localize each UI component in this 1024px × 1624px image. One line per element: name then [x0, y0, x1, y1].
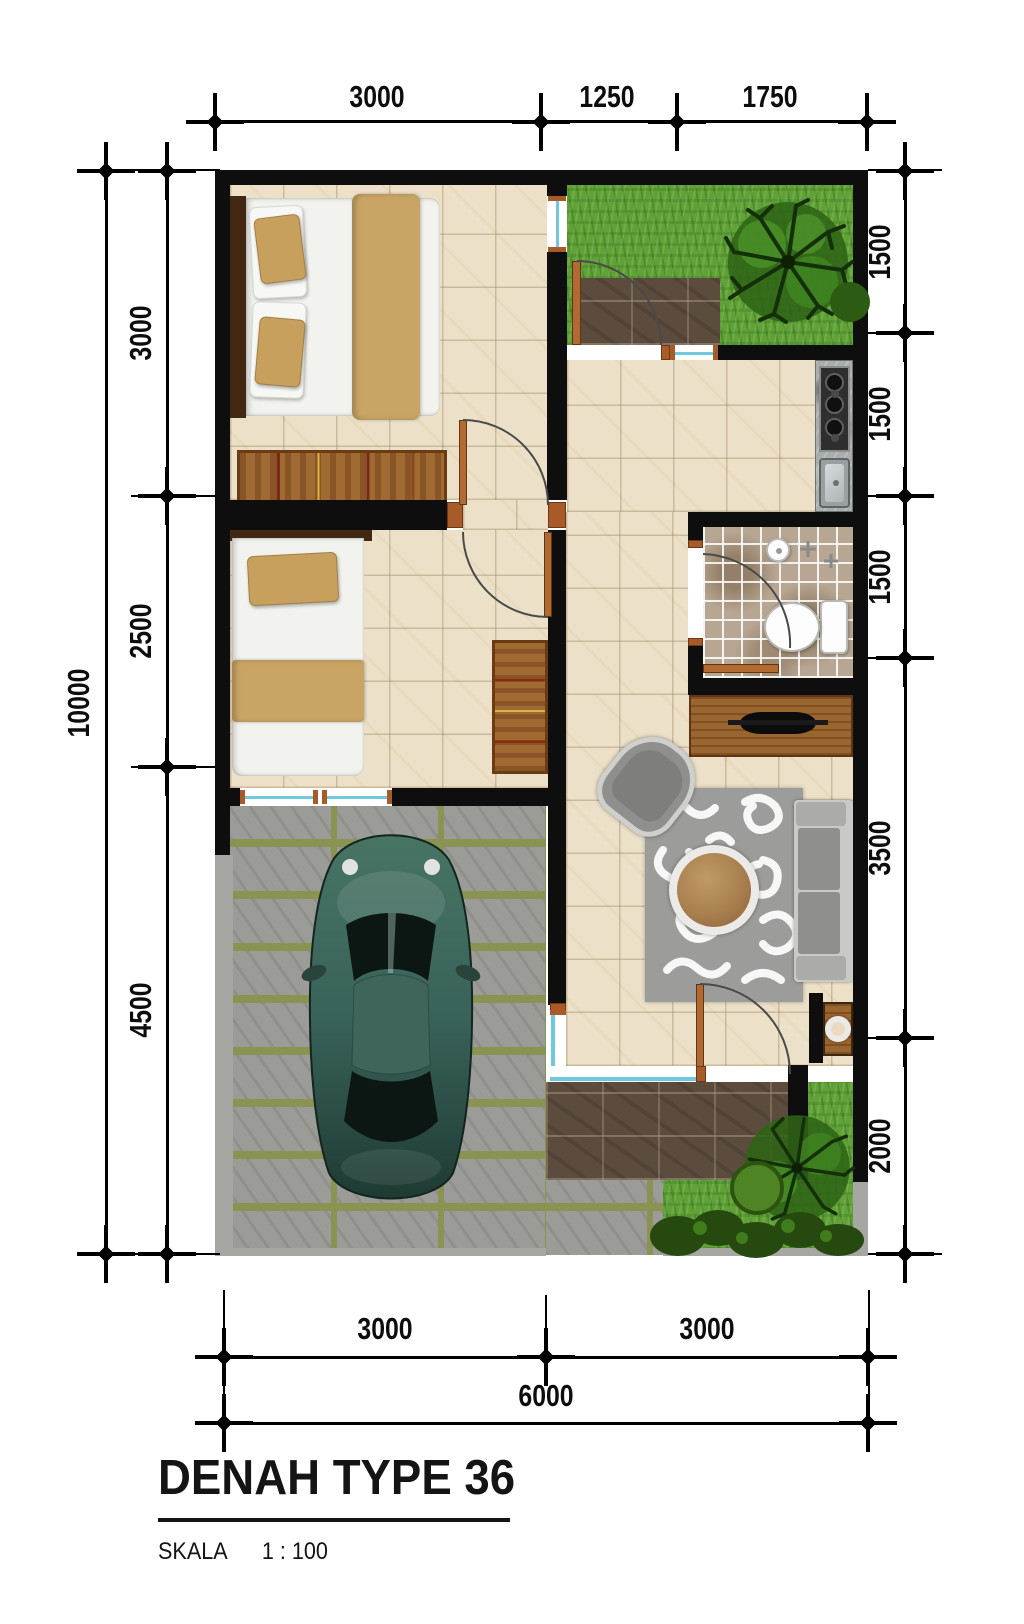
garden-back	[663, 1180, 853, 1250]
sofa-armrest-top	[796, 802, 846, 826]
bed2-pillow	[247, 552, 339, 607]
wall-bed1-east	[547, 170, 567, 196]
dim-tick	[876, 1225, 934, 1283]
car-rear-window	[344, 1071, 438, 1142]
terrace-back	[546, 1082, 788, 1180]
door-leaf-bed2	[544, 532, 552, 617]
stove-knob	[831, 390, 839, 398]
jamb-back-door	[696, 1066, 706, 1082]
bed1-pillow-tan-1	[253, 213, 307, 284]
dim-tick	[648, 93, 706, 151]
wall-bedrooms	[215, 500, 447, 530]
shower-valve-icon	[800, 541, 816, 557]
wall-front	[718, 345, 853, 360]
wall-bed2-south	[392, 788, 566, 806]
dim-tick	[195, 1328, 253, 1386]
dim-label-right-5: 2000	[862, 1118, 898, 1173]
terrace-front	[575, 278, 720, 345]
dim-line-left-inner	[166, 170, 169, 1255]
wall-right	[853, 170, 868, 1182]
floor-kitchen	[567, 360, 853, 512]
window-front	[670, 345, 718, 360]
bed1-blanket	[352, 194, 420, 420]
jamb-bath-door	[688, 540, 703, 548]
bed2-wardrobe	[492, 640, 548, 774]
shower-valve-icon	[824, 554, 838, 568]
dim-label-bottom-2: 3000	[679, 1311, 734, 1347]
wall-bath-north	[688, 512, 853, 527]
dim-label-right-4: 3500	[862, 820, 898, 875]
jamb-bath-door	[688, 638, 703, 646]
shower-head-center	[776, 548, 782, 554]
window-bed2-south-1	[240, 790, 318, 804]
sink	[819, 458, 850, 508]
sofa-cushion	[798, 828, 840, 890]
door-leaf-bed1	[459, 420, 467, 505]
dim-label-left-total: 10000	[61, 669, 97, 738]
dim-tick	[876, 1009, 934, 1067]
toilet-bowl	[764, 602, 820, 652]
floor-hall	[566, 512, 688, 695]
bed1-headboard	[228, 196, 246, 418]
bed2-blanket	[232, 660, 364, 722]
dim-tick	[512, 93, 570, 151]
wall-bed1-east	[547, 252, 567, 500]
dim-tick	[839, 1328, 897, 1386]
dim-line-left-outer	[105, 170, 108, 1255]
car	[300, 815, 482, 1215]
tv-stand-bar	[728, 720, 828, 725]
dim-tick	[138, 467, 196, 525]
side-table-bowl-inner	[831, 1022, 845, 1036]
wall-top	[215, 170, 868, 185]
stove	[819, 366, 850, 452]
shower-head	[766, 538, 790, 562]
scale-row: SKALA1 : 100	[158, 1538, 328, 1566]
dim-label-bottom-1: 3000	[357, 1311, 412, 1347]
garden-side-strip	[808, 1082, 853, 1182]
sofa-armrest-bottom	[796, 956, 846, 980]
curb-bottom-right	[663, 1248, 868, 1256]
dim-label-right-1: 1500	[862, 224, 898, 279]
dim-tick	[77, 1225, 135, 1283]
dim-tick	[77, 142, 135, 200]
stove-knob	[831, 434, 839, 442]
dim-tick	[876, 304, 934, 362]
car-headlight-left	[342, 859, 358, 875]
dim-tick	[138, 1225, 196, 1283]
sink-faucet-icon	[833, 480, 839, 486]
coffee-table	[677, 853, 751, 927]
dim-tick	[876, 629, 934, 687]
plan-title: DENAH TYPE 36	[158, 1450, 515, 1506]
scale-value: 1 : 100	[262, 1538, 328, 1565]
dim-tick	[876, 467, 934, 525]
door-leaf-entrance	[572, 261, 581, 345]
car-headlight-right	[424, 859, 440, 875]
door-leaf-bath	[703, 664, 779, 673]
bed1-pillow-tan-2	[254, 316, 306, 388]
wall-bath-south	[688, 678, 853, 695]
dim-label-right-3: 1500	[862, 549, 898, 604]
floor-doorway	[463, 500, 548, 530]
curb-right	[853, 1182, 868, 1255]
floor-plan-sheet: 3000 1250 1750 10000 3000 2500 4500 1500…	[0, 0, 1024, 1624]
armchair-cushion	[606, 740, 693, 827]
window-bed2-south-2	[322, 790, 392, 804]
dim-label-left-3: 4500	[123, 982, 159, 1037]
tv	[740, 712, 816, 734]
dim-label-top-1: 3000	[349, 79, 404, 115]
dim-label-bottom-total: 6000	[518, 1378, 573, 1414]
car-trunk-highlight	[341, 1149, 441, 1185]
sofa-cushion	[798, 892, 840, 954]
wall-sofa-stub	[809, 993, 823, 1063]
wall-terrace-east	[788, 1065, 808, 1180]
scale-label: SKALA	[158, 1538, 228, 1565]
curb-left	[215, 855, 233, 1255]
window-living-south	[550, 1066, 696, 1082]
path-paving	[546, 1180, 663, 1255]
door-leaf-back	[696, 984, 704, 1074]
jamb-entrance	[661, 345, 670, 360]
dim-label-left-1: 3000	[123, 305, 159, 360]
dim-tick	[876, 142, 934, 200]
dim-label-right-2: 1500	[862, 386, 898, 441]
window-bed1-east	[548, 196, 566, 252]
dim-tick	[138, 738, 196, 796]
car-roof	[352, 975, 430, 1075]
dim-tick	[839, 1394, 897, 1452]
dim-line-bottom-outer	[224, 1422, 869, 1425]
wall-bath-west	[688, 645, 703, 678]
jamb-bedroom-doorway	[447, 502, 463, 528]
dim-label-left-2: 2500	[123, 603, 159, 658]
sofa	[794, 800, 853, 982]
title-underline	[158, 1518, 510, 1522]
dim-tick	[195, 1394, 253, 1452]
wall-bed2-south	[215, 788, 240, 806]
curb-bottom-left	[215, 1248, 546, 1256]
jamb-bedroom-doorway	[548, 502, 566, 528]
dim-label-top-3: 1750	[742, 79, 797, 115]
dim-tick	[138, 142, 196, 200]
dim-label-top-2: 1250	[579, 79, 634, 115]
toilet-tank	[820, 600, 848, 654]
